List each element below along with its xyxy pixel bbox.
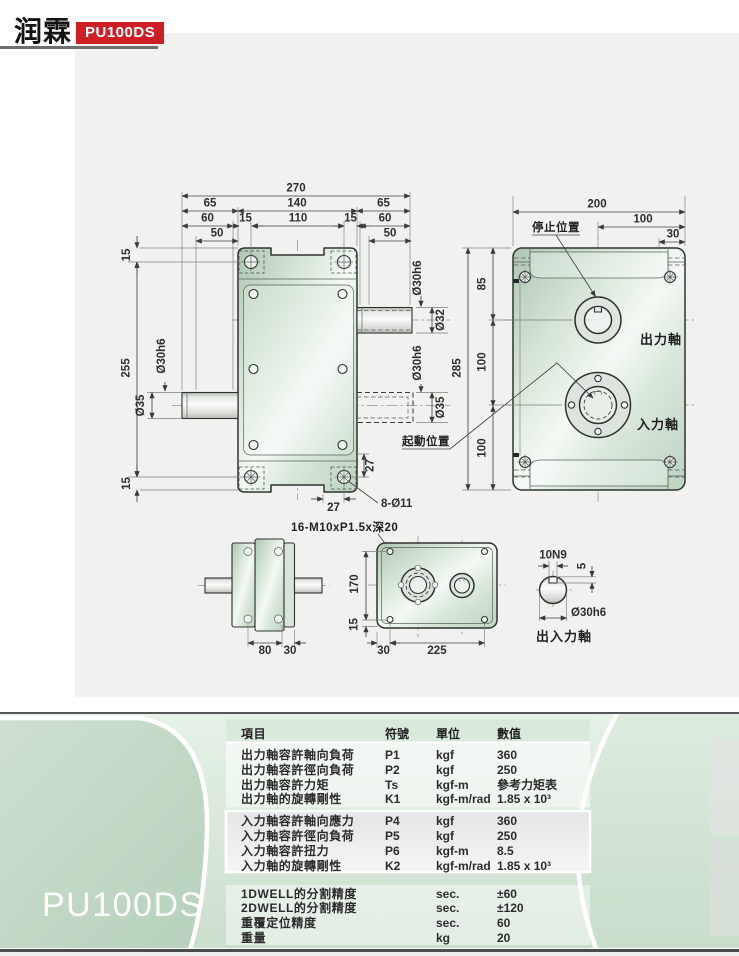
col-header-unit: 單位 xyxy=(436,727,460,742)
dim-label: 30 xyxy=(377,645,390,657)
input-shaft-left xyxy=(182,393,238,419)
dim-label: 27 xyxy=(327,502,340,514)
dim-label: 225 xyxy=(427,645,447,657)
dim-label: Ø30h6 xyxy=(571,607,606,619)
spec-row: 重覆定位精度 sec. 60 xyxy=(0,916,739,932)
datasheet-page: 270 65 140 65 60 15 110 15 60 50 50 15 2… xyxy=(0,0,739,956)
start-position-label: 起動位置 xyxy=(401,434,450,448)
dim-label: 255 xyxy=(121,358,133,378)
dim-label: 15 xyxy=(344,213,357,225)
dim-label: 15 xyxy=(121,477,133,490)
dim-label: Ø35 xyxy=(435,396,447,418)
spec-row: 出力軸容許軸向負荷 P1 kgf 360 xyxy=(0,748,739,764)
dim-label: 85 xyxy=(477,277,489,290)
spec-row: 入力軸容許徑向負荷 P5 kgf 250 xyxy=(0,829,739,845)
dim-label: 285 xyxy=(452,358,464,378)
dim-label: Ø30h6 xyxy=(412,260,424,295)
model-badge: PU100DS xyxy=(76,22,164,44)
keyway-label: 10N9 xyxy=(539,550,567,562)
dim-label: Ø30h6 xyxy=(412,345,424,380)
dim-label: Ø35 xyxy=(135,394,147,416)
spec-row: 入力軸容許扭力 P6 kgf-m 8.5 xyxy=(0,844,739,860)
dim-label: 27 xyxy=(365,459,377,472)
dim-label: 60 xyxy=(201,213,214,225)
spec-row: 出力軸的旋轉剛性 K1 kgf-m/rad 1.85 x 10³ xyxy=(0,792,739,808)
hole-callout: 8-Ø11 xyxy=(381,498,413,510)
dim-label: 15 xyxy=(349,618,361,631)
tap-callout: 16-M10xP1.5x深20 xyxy=(291,520,398,534)
dim-label: 110 xyxy=(289,213,308,225)
dim-label: 15 xyxy=(239,213,252,225)
col-header-symbol: 符號 xyxy=(385,727,409,742)
dim-label: Ø30h6 xyxy=(156,338,168,373)
spec-row: 出力軸容許徑向負荷 P2 kgf 250 xyxy=(0,763,739,779)
dim-label: 170 xyxy=(349,574,361,593)
spec-row: 2DWELL的分割精度 sec. ±120 xyxy=(0,901,739,917)
dim-label: 100 xyxy=(477,438,489,457)
dim-label: 100 xyxy=(477,352,489,371)
input-shaft-flange xyxy=(566,373,631,438)
brand-logo: 润霖 xyxy=(14,10,72,50)
dim-label: 50 xyxy=(211,228,224,240)
dim-label: 60 xyxy=(379,213,392,225)
dim-label: Ø32 xyxy=(435,309,447,331)
io-shaft-label: 出入力軸 xyxy=(536,629,592,644)
spec-row: 重量 kg 20 xyxy=(0,931,739,947)
dim-label: 65 xyxy=(377,198,390,210)
dim-label: 30 xyxy=(667,229,680,241)
spec-row: 入力軸的旋轉剛性 K2 kgf-m/rad 1.85 x 10³ xyxy=(0,859,739,875)
output-shaft-label: 出力軸 xyxy=(640,332,682,347)
spec-header-row: 項目 符號 單位 數值 xyxy=(0,727,739,743)
dim-label: 65 xyxy=(204,198,217,210)
dim-label: 5 xyxy=(577,562,589,569)
page-footer-strip xyxy=(0,952,739,956)
dim-label: 30 xyxy=(284,645,297,657)
output-shaft-bore xyxy=(575,297,621,343)
dim-label: 15 xyxy=(121,248,133,261)
col-header-item: 項目 xyxy=(241,727,266,742)
dim-label: 80 xyxy=(259,645,272,657)
spec-row: 入力軸容許軸向應力 P4 kgf 360 xyxy=(0,814,739,830)
dim-label: 270 xyxy=(286,183,305,195)
input-shaft-label: 入力軸 xyxy=(637,417,679,432)
dim-label: 200 xyxy=(587,199,606,211)
dim-label: 140 xyxy=(287,198,306,210)
output-shaft-right xyxy=(357,308,412,334)
dim-label: 100 xyxy=(633,214,652,226)
technical-drawing: 270 65 140 65 60 15 110 15 60 50 50 15 2… xyxy=(0,0,739,706)
col-header-value: 數值 xyxy=(497,727,521,742)
dim-label: 50 xyxy=(384,228,397,240)
stop-position-label: 停止位置 xyxy=(532,220,580,234)
